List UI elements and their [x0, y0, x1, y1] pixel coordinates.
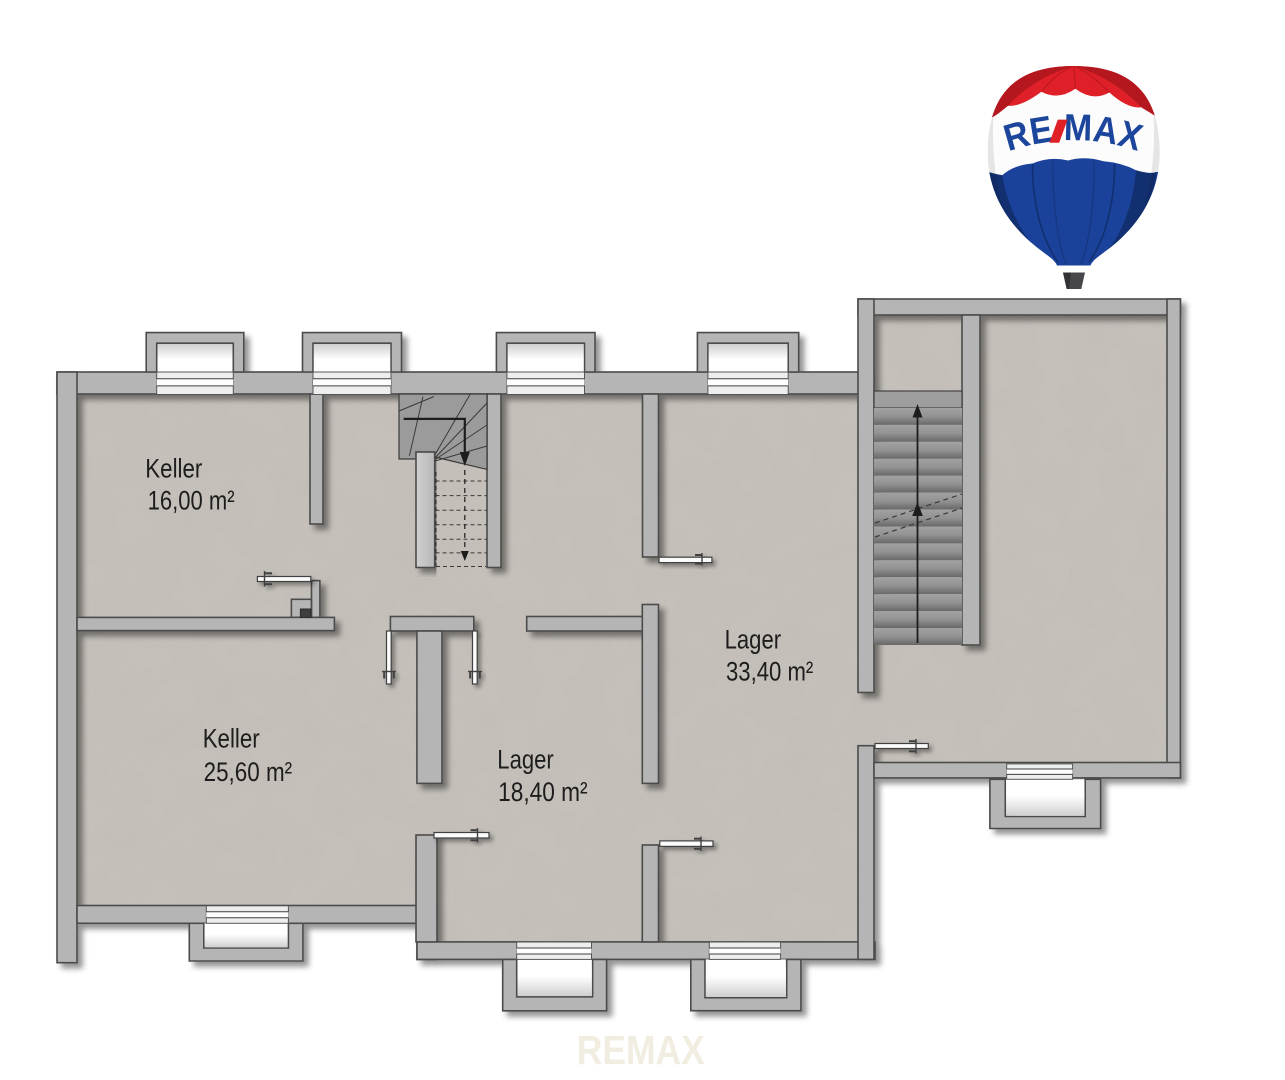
svg-text:16,00 m²: 16,00 m²: [148, 485, 235, 515]
svg-text:18,40 m²: 18,40 m²: [498, 777, 587, 807]
svg-text:33,40 m²: 33,40 m²: [726, 656, 813, 686]
svg-text:REMAX: REMAX: [577, 1027, 705, 1073]
svg-text:Keller: Keller: [145, 453, 202, 483]
svg-text:25,60 m²: 25,60 m²: [204, 757, 293, 787]
svg-text:Keller: Keller: [203, 724, 260, 754]
svg-text:Lager: Lager: [725, 624, 782, 654]
svg-text:Lager: Lager: [497, 745, 554, 775]
